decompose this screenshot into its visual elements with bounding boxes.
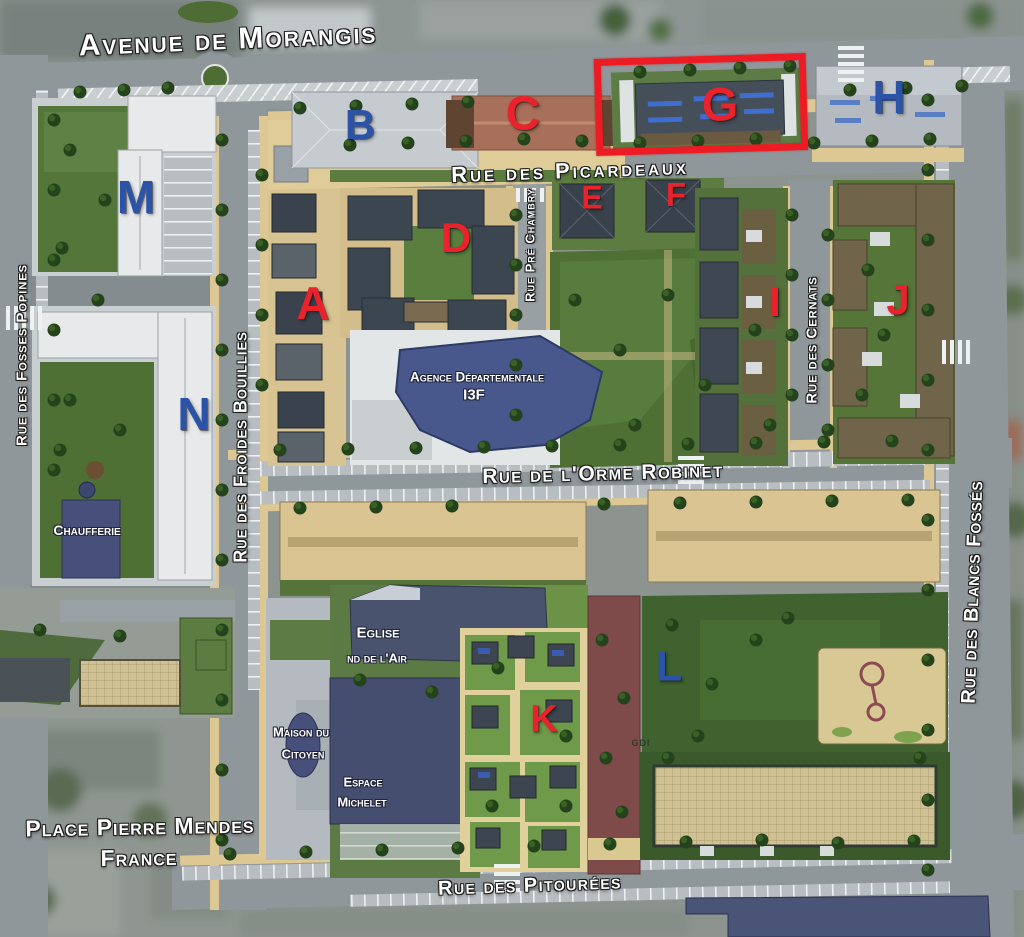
masterplan-map: Avenue de Morangis Rue des Picardeaux Ru… bbox=[0, 0, 1024, 937]
mall bbox=[588, 596, 640, 874]
block-d bbox=[340, 188, 518, 338]
bottom-blue-building bbox=[686, 896, 990, 937]
block-k bbox=[460, 628, 588, 872]
espace-michelet-building bbox=[330, 678, 480, 824]
maison-du-citoyen-building bbox=[286, 713, 320, 777]
right-park bbox=[642, 592, 948, 768]
map-artwork bbox=[0, 0, 1024, 937]
bottom-left-zone bbox=[0, 588, 235, 718]
chaufferie-building bbox=[62, 500, 120, 578]
block-a bbox=[268, 188, 346, 466]
highlight-rectangle-g bbox=[594, 53, 809, 156]
southeast-bar-building bbox=[648, 490, 940, 582]
southwest-bar-building bbox=[280, 502, 586, 596]
block-bc bbox=[268, 92, 625, 190]
block-j bbox=[833, 180, 955, 464]
